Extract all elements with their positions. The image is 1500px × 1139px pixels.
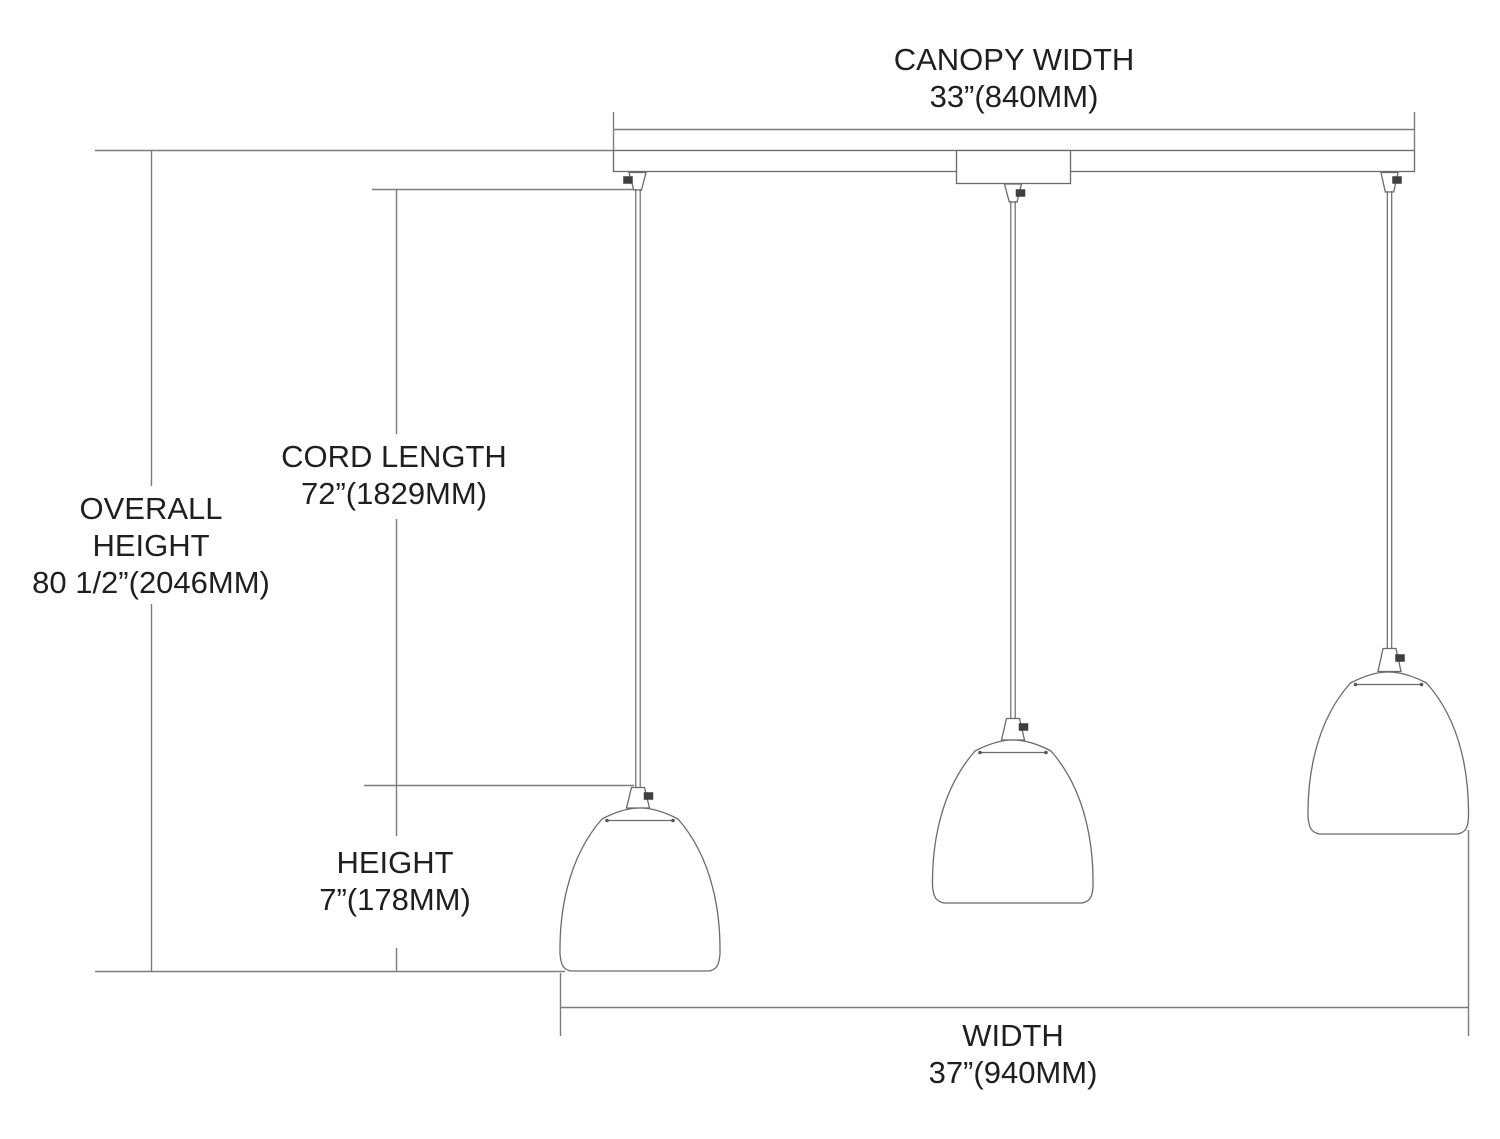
rim-dot: [978, 751, 982, 755]
overall-height-label-line2: HEIGHT: [92, 528, 209, 563]
diagram-drawing: CANOPY WIDTH 33”(840MM) OVERALL HEIGHT 8…: [0, 0, 1500, 1139]
socket-screw-icon: [1019, 724, 1028, 731]
pendant-left: [560, 173, 720, 972]
rim-dot: [1354, 683, 1358, 687]
cord-length-label: CORD LENGTH: [281, 439, 507, 474]
grip-screw-icon: [1016, 190, 1025, 197]
pendant-middle: [932, 184, 1093, 903]
shade-height-value: 7”(178MM): [319, 882, 471, 917]
overall-height-label-line1: OVERALL: [79, 491, 222, 526]
width-label: WIDTH: [962, 1018, 1064, 1053]
shade-height-label: HEIGHT: [336, 845, 453, 880]
rim-dot: [605, 819, 609, 823]
canopy-mounting-box: [957, 151, 1071, 184]
pendant-dimension-diagram: CANOPY WIDTH 33”(840MM) OVERALL HEIGHT 8…: [0, 0, 1500, 1139]
grip-screw-icon: [1393, 177, 1402, 184]
dimension-lines: [95, 112, 1469, 1036]
rim-dot: [1420, 683, 1424, 687]
rim-dot: [1044, 751, 1048, 755]
rim-dot: [671, 819, 675, 823]
cord-length-value: 72”(1829MM): [301, 476, 487, 511]
canopy-width-label: CANOPY WIDTH: [894, 42, 1135, 77]
shade-left: [560, 808, 720, 971]
socket-screw-icon: [1396, 655, 1405, 662]
grip-screw-icon: [624, 177, 633, 184]
width-value: 37”(940MM): [929, 1055, 1098, 1090]
overall-height-value: 80 1/2”(2046MM): [32, 565, 270, 600]
shade-right: [1308, 672, 1469, 834]
canopy-width-value: 33”(840MM): [930, 79, 1099, 114]
shade-middle: [932, 740, 1093, 903]
socket-screw-icon: [644, 793, 653, 800]
canopy-bar: [614, 151, 1415, 184]
pendant-right: [1308, 173, 1469, 835]
